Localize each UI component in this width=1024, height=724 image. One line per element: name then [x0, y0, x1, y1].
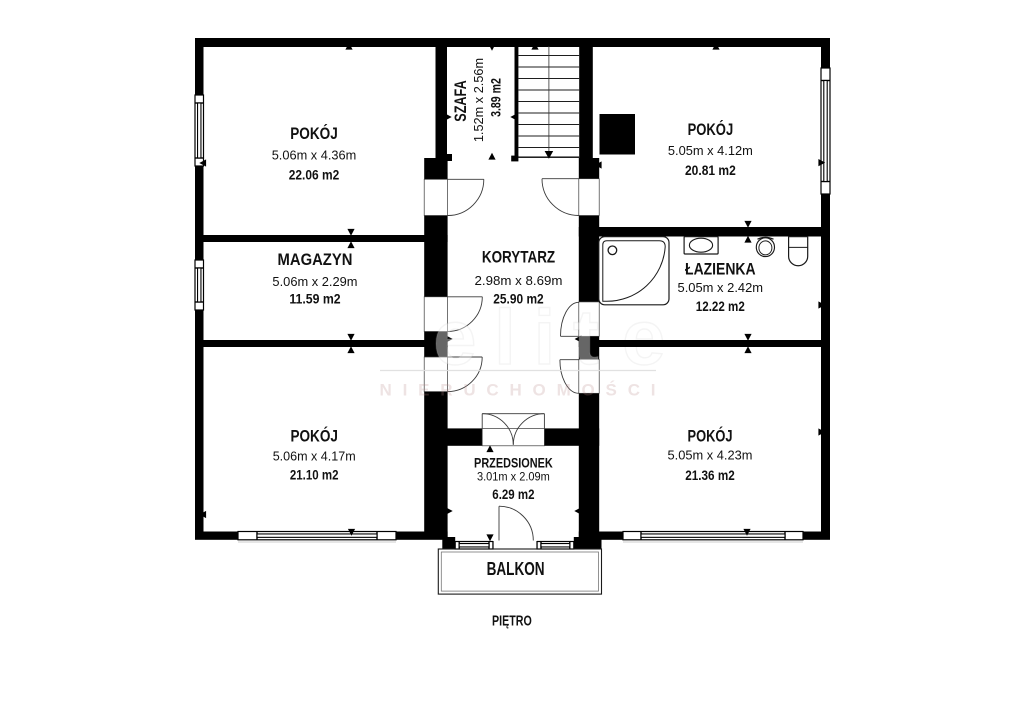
svg-text:2.98m x 8.69m: 2.98m x 8.69m [475, 273, 563, 288]
svg-text:5.06m x 4.17m: 5.06m x 4.17m [273, 449, 356, 464]
svg-text:PIĘTRO: PIĘTRO [492, 613, 532, 629]
svg-text:22.06 m2: 22.06 m2 [289, 167, 340, 182]
svg-text:5.06m x 2.29m: 5.06m x 2.29m [272, 274, 357, 289]
svg-text:POKÓJ: POKÓJ [290, 426, 338, 445]
svg-text:MAGAZYN: MAGAZYN [278, 251, 353, 269]
svg-text:3.89 m2: 3.89 m2 [489, 78, 504, 117]
svg-text:5.05m x 4.23m: 5.05m x 4.23m [668, 448, 753, 463]
svg-text:POKÓJ: POKÓJ [688, 426, 733, 445]
svg-text:NIERUCHOMOŚCI: NIERUCHOMOŚCI [380, 381, 656, 400]
svg-text:KORYTARZ: KORYTARZ [482, 248, 555, 266]
svg-text:POKÓJ: POKÓJ [688, 120, 734, 139]
svg-text:1.52m x 2.56m: 1.52m x 2.56m [471, 58, 486, 142]
svg-text:20.81 m2: 20.81 m2 [685, 163, 736, 178]
svg-text:5.05m x 4.12m: 5.05m x 4.12m [668, 143, 753, 158]
svg-text:BALKON: BALKON [487, 558, 545, 579]
svg-text:e: e [622, 293, 665, 381]
svg-text:POKÓJ: POKÓJ [290, 124, 338, 143]
svg-text:5.06m x 4.36m: 5.06m x 4.36m [272, 147, 357, 162]
svg-text:ŁAZIENKA: ŁAZIENKA [685, 260, 756, 278]
svg-text:21.10 m2: 21.10 m2 [290, 467, 339, 482]
svg-text:11.59 m2: 11.59 m2 [289, 291, 341, 306]
svg-text:PRZEDSIONEK: PRZEDSIONEK [474, 455, 553, 470]
svg-text:5.05m x 2.42m: 5.05m x 2.42m [678, 280, 764, 295]
svg-text:6.29 m2: 6.29 m2 [492, 487, 535, 502]
svg-text:3.01m x 2.09m: 3.01m x 2.09m [477, 469, 550, 483]
svg-text:12.22 m2: 12.22 m2 [696, 299, 745, 314]
svg-text:SZAFA: SZAFA [452, 80, 470, 122]
svg-text:21.36 m2: 21.36 m2 [685, 468, 735, 483]
